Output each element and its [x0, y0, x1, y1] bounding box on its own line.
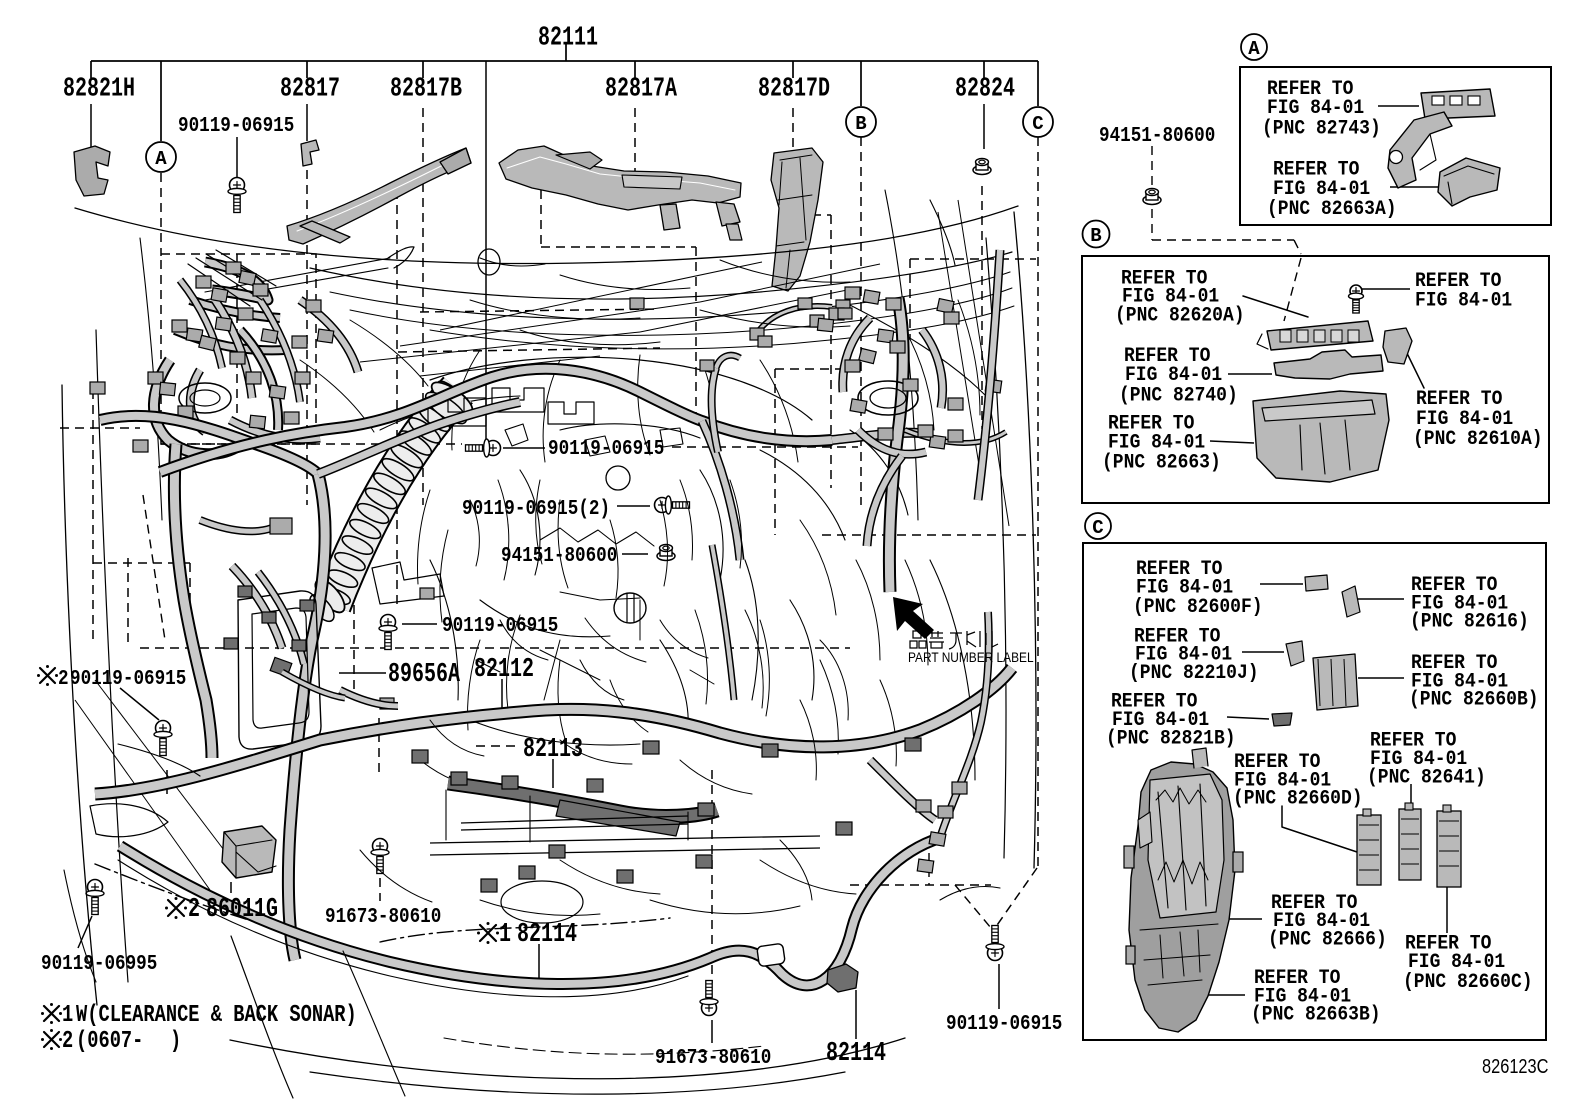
svg-text:A: A	[1248, 38, 1260, 60]
svg-text:(PNC 82616): (PNC 82616)	[1410, 610, 1529, 633]
svg-text:89656A: 89656A	[388, 659, 461, 690]
svg-text:FIG 84-01: FIG 84-01	[1415, 289, 1512, 312]
svg-text:(PNC 82740): (PNC 82740)	[1119, 384, 1238, 407]
svg-text:82817: 82817	[280, 74, 340, 105]
svg-text:82817D: 82817D	[758, 74, 830, 105]
svg-text:1: 1	[499, 919, 511, 950]
svg-text:91673-80610: 91673-80610	[655, 1046, 771, 1070]
svg-text:90119-06915: 90119-06915	[70, 667, 186, 691]
svg-text:(PNC 82210J): (PNC 82210J)	[1129, 661, 1259, 684]
svg-text:C: C	[1032, 113, 1043, 135]
svg-text:(PNC 82610A): (PNC 82610A)	[1413, 427, 1543, 450]
svg-text:C: C	[1092, 517, 1103, 539]
svg-text:94151-80600: 94151-80600	[501, 544, 617, 568]
svg-text:(PNC 82600F): (PNC 82600F)	[1133, 595, 1263, 618]
svg-text:W(CLEARANCE & BACK SONAR): W(CLEARANCE & BACK SONAR)	[76, 1002, 357, 1029]
svg-text:82114: 82114	[826, 1038, 886, 1069]
svg-text:(PNC 82663A): (PNC 82663A)	[1267, 197, 1397, 220]
svg-text:A: A	[155, 148, 167, 170]
svg-text:): )	[170, 1028, 181, 1055]
svg-text:82817A: 82817A	[605, 74, 678, 105]
svg-text:(PNC 82821B): (PNC 82821B)	[1106, 726, 1236, 749]
svg-text:(PNC 82666): (PNC 82666)	[1268, 928, 1387, 951]
svg-text:86011G: 86011G	[206, 894, 278, 925]
svg-text:90119-06915(2): 90119-06915(2)	[462, 497, 610, 521]
svg-text:90119-06915: 90119-06915	[946, 1012, 1062, 1036]
svg-text:2: 2	[62, 1028, 73, 1055]
svg-text:91673-80610: 91673-80610	[325, 905, 441, 929]
svg-text:90119-06995: 90119-06995	[41, 952, 157, 976]
svg-text:(PNC 82660B): (PNC 82660B)	[1409, 688, 1539, 711]
svg-text:(PNC 82641): (PNC 82641)	[1367, 766, 1486, 789]
svg-text:826123C: 826123C	[1482, 1054, 1548, 1077]
svg-text:(PNC 82660D): (PNC 82660D)	[1233, 787, 1363, 810]
svg-text:1: 1	[62, 1002, 73, 1029]
svg-text:82817B: 82817B	[390, 74, 462, 105]
svg-text:2: 2	[188, 894, 200, 925]
svg-text:82824: 82824	[955, 74, 1015, 105]
svg-text:82112: 82112	[474, 654, 534, 685]
svg-text:82113: 82113	[523, 734, 583, 765]
svg-text:82821H: 82821H	[63, 74, 135, 105]
svg-text:(PNC 82620A): (PNC 82620A)	[1115, 304, 1245, 327]
svg-text:90119-06915: 90119-06915	[178, 114, 294, 138]
svg-text:94151-80600: 94151-80600	[1099, 124, 1215, 148]
svg-text:90119-06915: 90119-06915	[548, 437, 664, 461]
svg-text:(PNC 82663): (PNC 82663)	[1102, 451, 1221, 474]
svg-text:B: B	[1090, 225, 1101, 247]
svg-text:82111: 82111	[538, 23, 598, 54]
svg-text:2: 2	[58, 667, 69, 691]
svg-text:90119-06915: 90119-06915	[442, 614, 558, 638]
svg-text:(PNC 82663B): (PNC 82663B)	[1251, 1003, 1381, 1026]
svg-text:(0607-: (0607-	[76, 1028, 143, 1055]
svg-text:PART NUMBER LABEL: PART NUMBER LABEL	[908, 649, 1034, 665]
svg-text:(PNC 82743): (PNC 82743)	[1262, 117, 1381, 140]
svg-text:B: B	[855, 113, 866, 135]
svg-text:82114: 82114	[517, 919, 577, 950]
svg-text:(PNC 82660C): (PNC 82660C)	[1403, 970, 1533, 993]
